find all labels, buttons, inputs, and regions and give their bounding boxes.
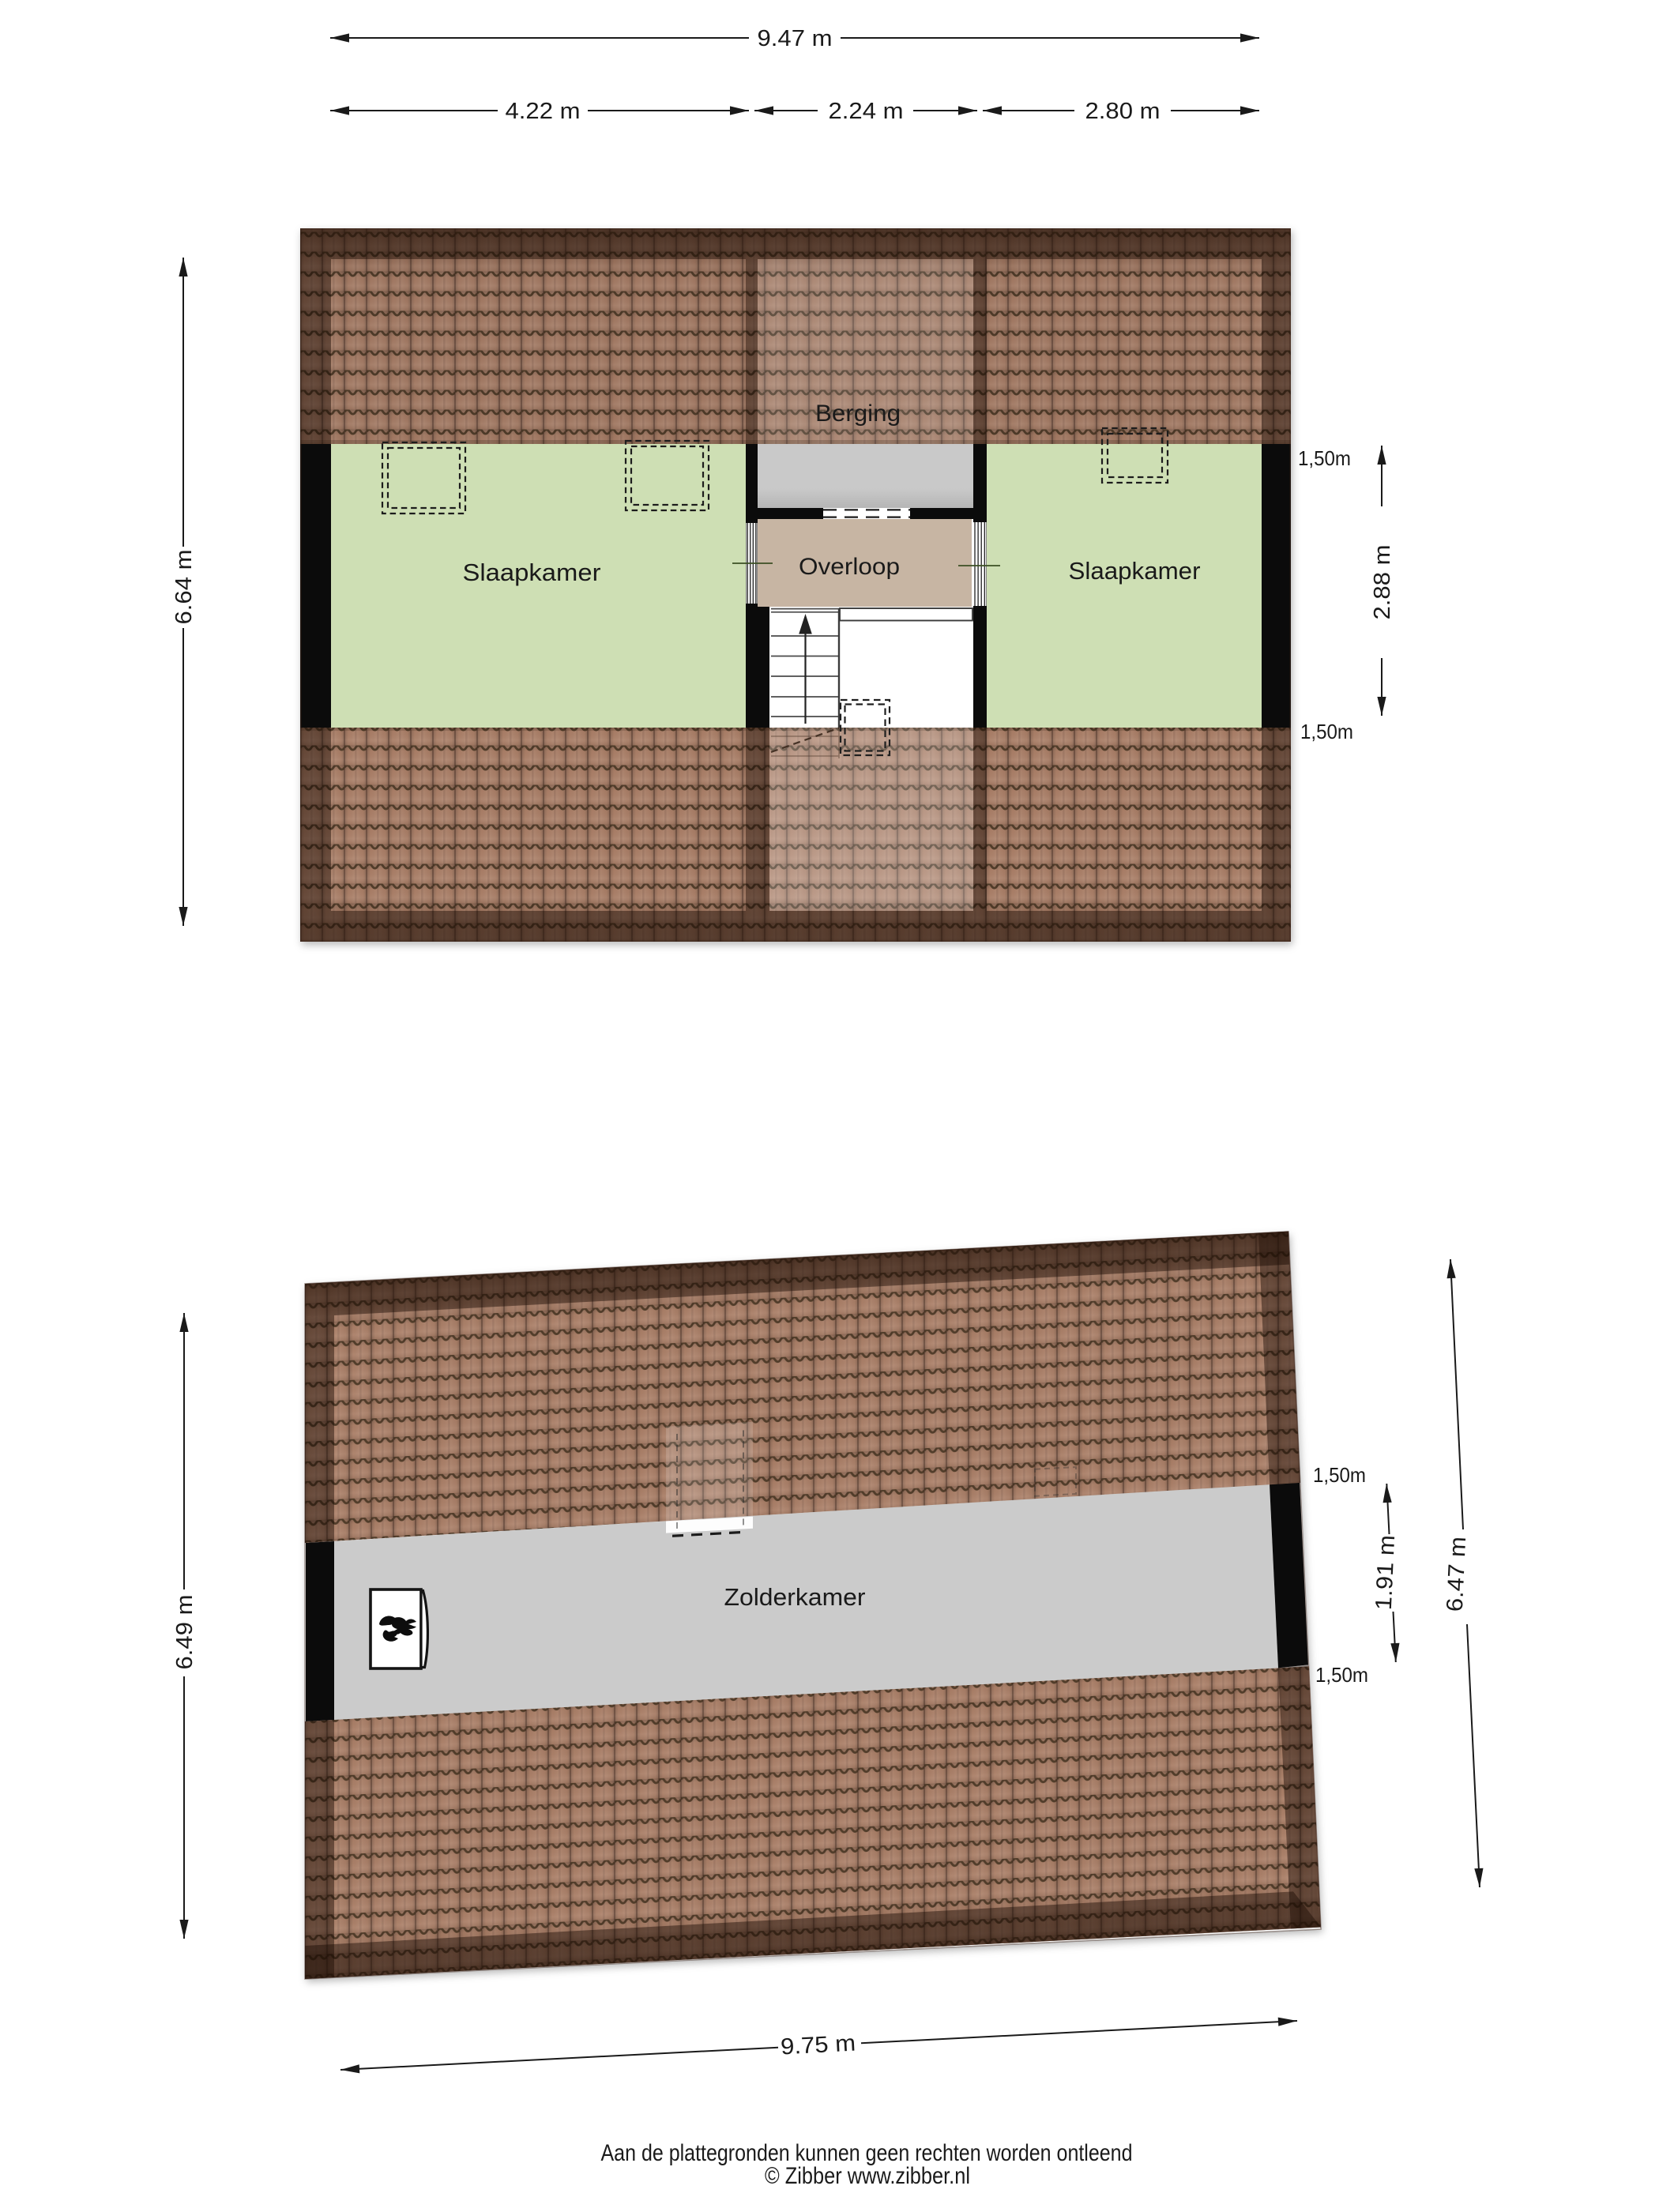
svg-text:Overloop: Overloop [799,554,900,580]
svg-text:1,50m: 1,50m [1315,1663,1368,1687]
svg-text:1,50m: 1,50m [1298,446,1351,470]
svg-text:1.91 m: 1.91 m [1371,1534,1400,1610]
svg-text:9.47 m: 9.47 m [758,26,833,51]
svg-text:2.88 m: 2.88 m [1370,545,1395,620]
svg-text:Berging: Berging [815,401,901,427]
svg-text:2.80 m: 2.80 m [1085,99,1161,124]
svg-text:6.49 m: 6.49 m [172,1595,197,1670]
svg-text:Zolderkamer: Zolderkamer [724,1583,866,1611]
svg-text:9.75 m: 9.75 m [780,2031,856,2060]
svg-text:1,50m: 1,50m [1313,1463,1366,1487]
svg-text:2.24 m: 2.24 m [829,99,904,124]
svg-text:Slaapkamer: Slaapkamer [1069,557,1201,585]
svg-text:6.47 m: 6.47 m [1443,1536,1471,1612]
svg-text:Slaapkamer: Slaapkamer [463,559,601,586]
svg-text:© Zibber www.zibber.nl: © Zibber www.zibber.nl [765,2163,970,2189]
svg-text:4.22 m: 4.22 m [506,99,581,124]
svg-text:1,50m: 1,50m [1300,720,1353,743]
svg-text:6.64 m: 6.64 m [171,550,197,625]
